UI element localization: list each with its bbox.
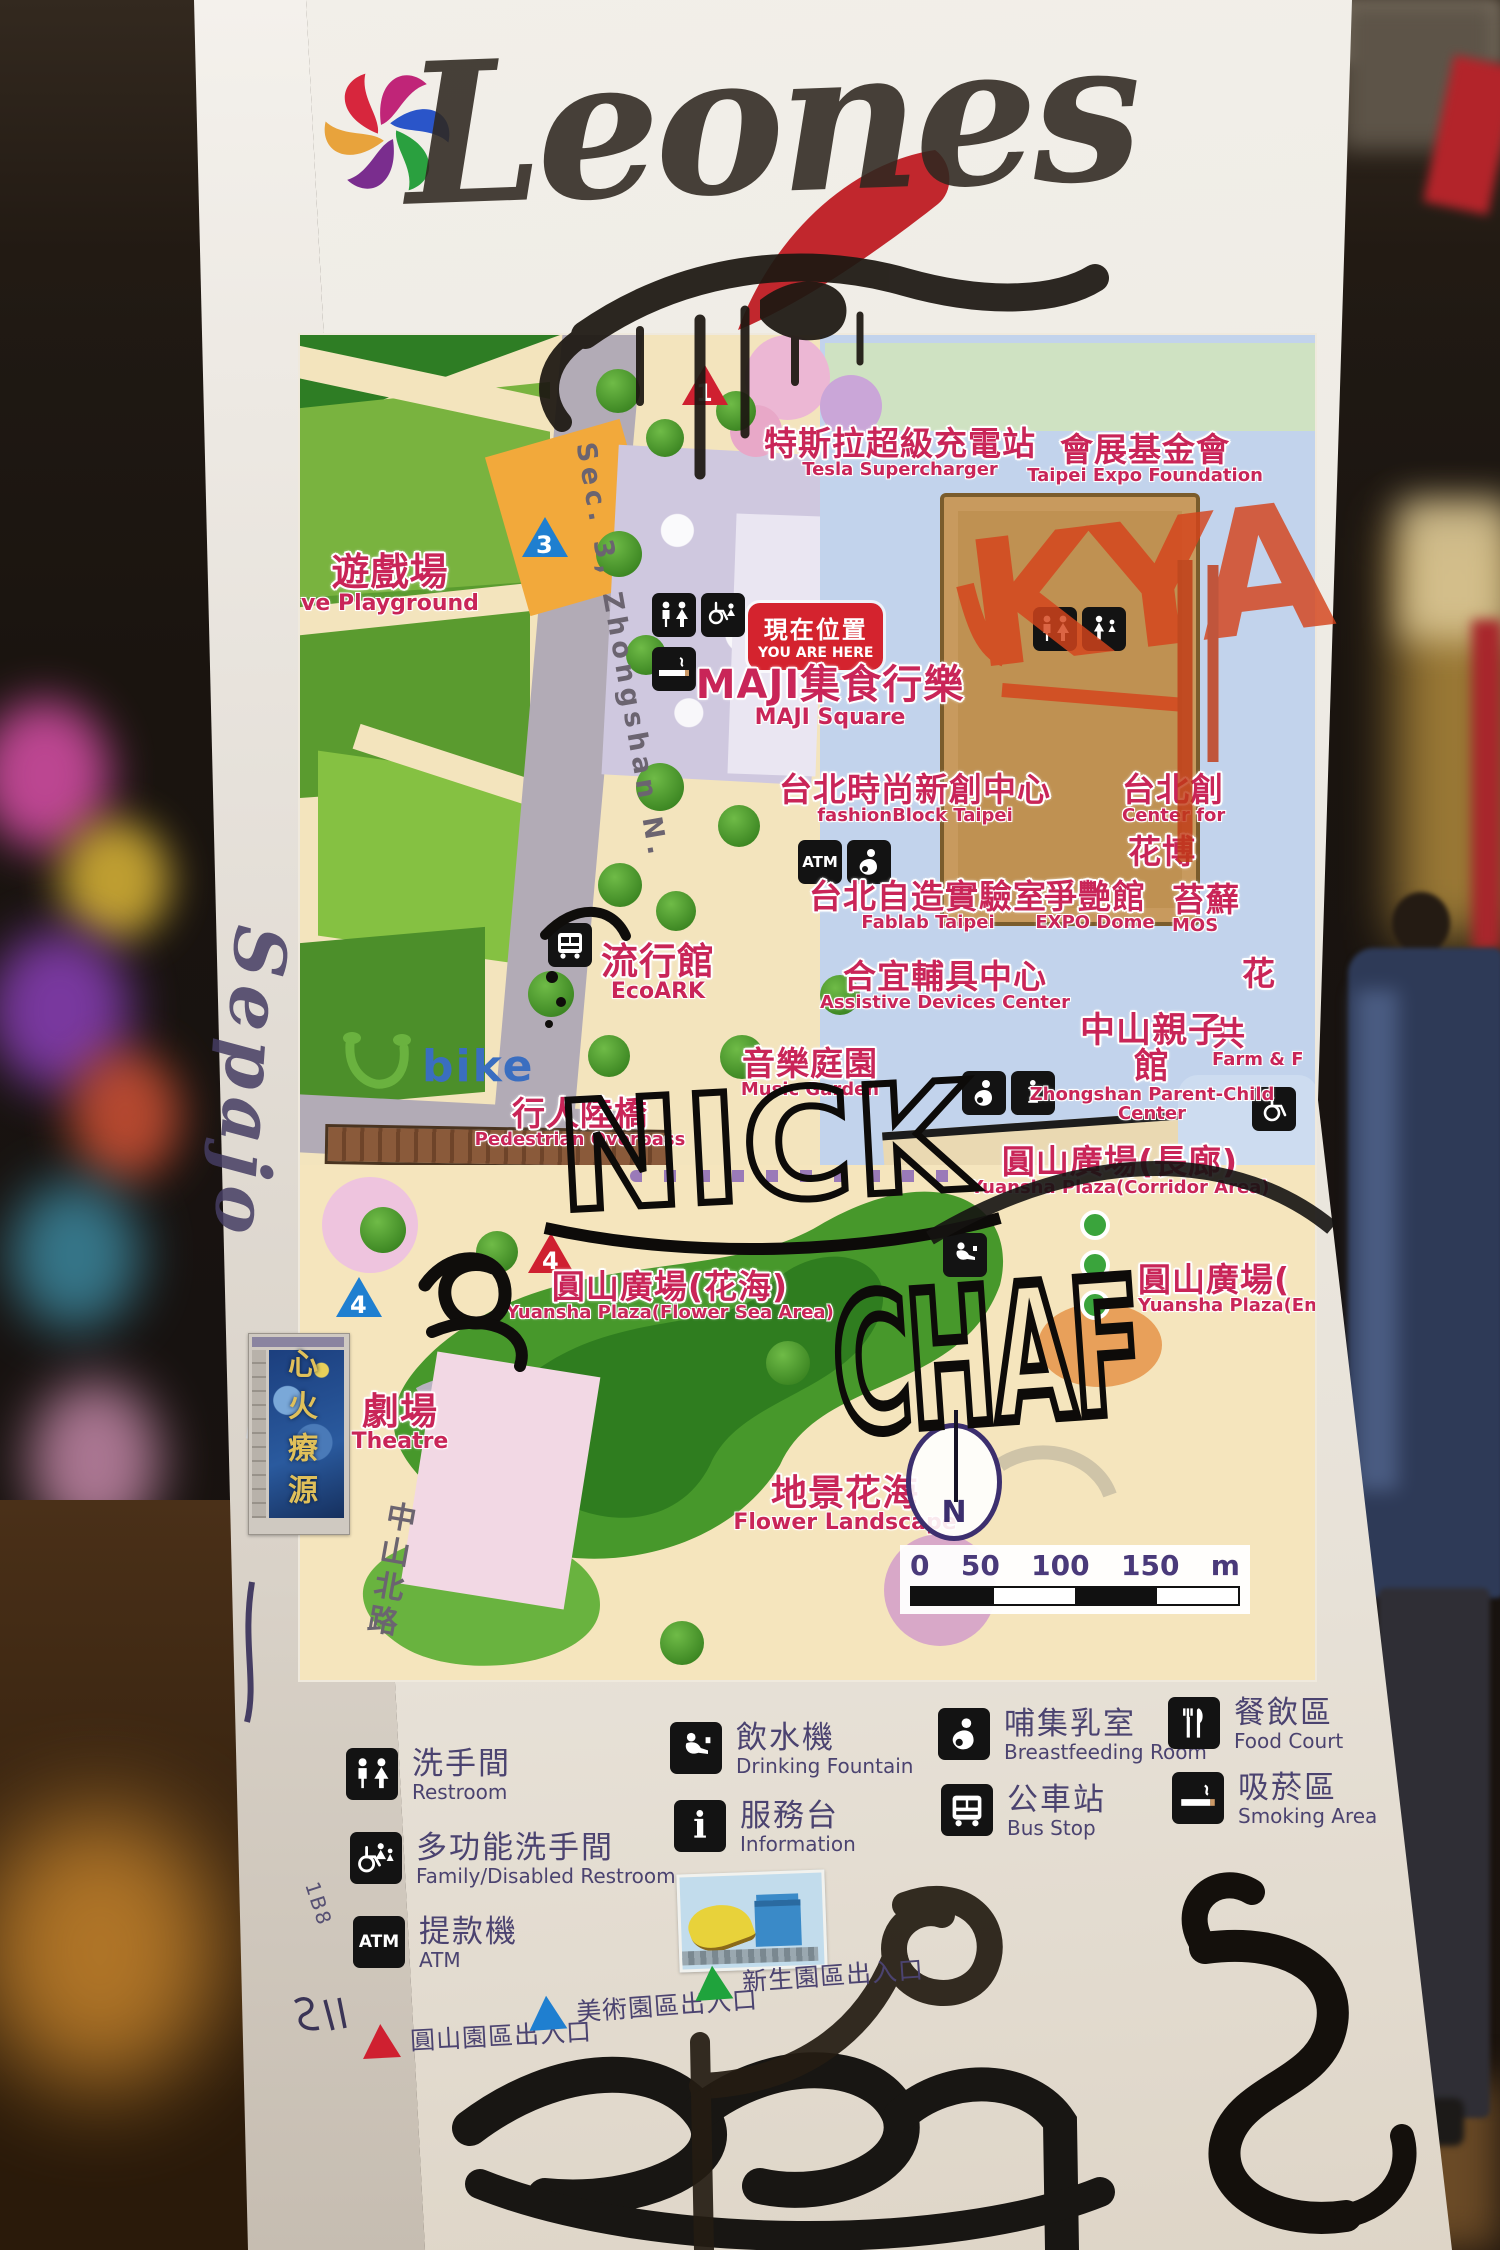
graffiti-nick: NICK [545,1050,1332,1249]
bus-icon [941,1784,993,1836]
legend-information: i 服務台Information [674,1800,856,1855]
graffiti-bottom-tag [470,2070,1100,2250]
graffiti-chaf: CHAF [826,1239,1147,1477]
sticker-titlebar [252,1337,344,1347]
banana-fish-sticker [676,1869,827,1972]
red-triangle-icon [361,2023,401,2059]
svg-text:CHAF: CHAF [826,1239,1147,1477]
breastfeeding-icon [938,1708,990,1760]
photo-scene: Leones [0,0,1500,2250]
graffiti-kya: KYA [955,464,1342,862]
graffiti-side-tail [247,1582,252,1722]
smoking-icon [1172,1772,1224,1824]
svg-text:KYA: KYA [955,464,1342,710]
legend-drinking-fountain: 飲水機Drinking Fountain [670,1722,913,1777]
blue-triangle-icon [527,1994,567,2031]
green-triangle-icon [693,1964,733,2001]
svg-text:NICK: NICK [553,1050,980,1246]
information-icon: i [674,1800,726,1852]
legend-bus-stop: 公車站Bus Stop [941,1784,1106,1839]
graffiti-s-swirl [1195,1885,1405,2218]
legend-smoking-area: 吸菸區Smoking Area [1172,1772,1377,1827]
sticker-text: 心火療源 [277,1348,321,1516]
accessible-restroom-icon [350,1832,402,1884]
drinking-fountain-icon [670,1722,722,1774]
graffiti-edge-mini-tag [295,1998,345,2030]
restroom-icon [346,1748,398,1800]
atm-icon: ATM [353,1916,405,1968]
food-court-icon [1168,1697,1220,1749]
legend-breastfeeding: 哺集乳室Breastfeeding Room [938,1708,1207,1763]
starry-night-sticker: 心火療源 [248,1333,350,1535]
legend-family-restroom: 多功能洗手間Family/Disabled Restroom [350,1832,676,1887]
legend-food-court: 餐飲區Food Court [1168,1697,1343,1752]
graffiti-drip-tag [549,267,1095,474]
sticker-toolbar [252,1350,266,1518]
castle-drawing [754,1899,802,1947]
legend-restroom: 洗手間Restroom [346,1748,511,1803]
legend-atm: ATM 提款機ATM [353,1916,518,1971]
